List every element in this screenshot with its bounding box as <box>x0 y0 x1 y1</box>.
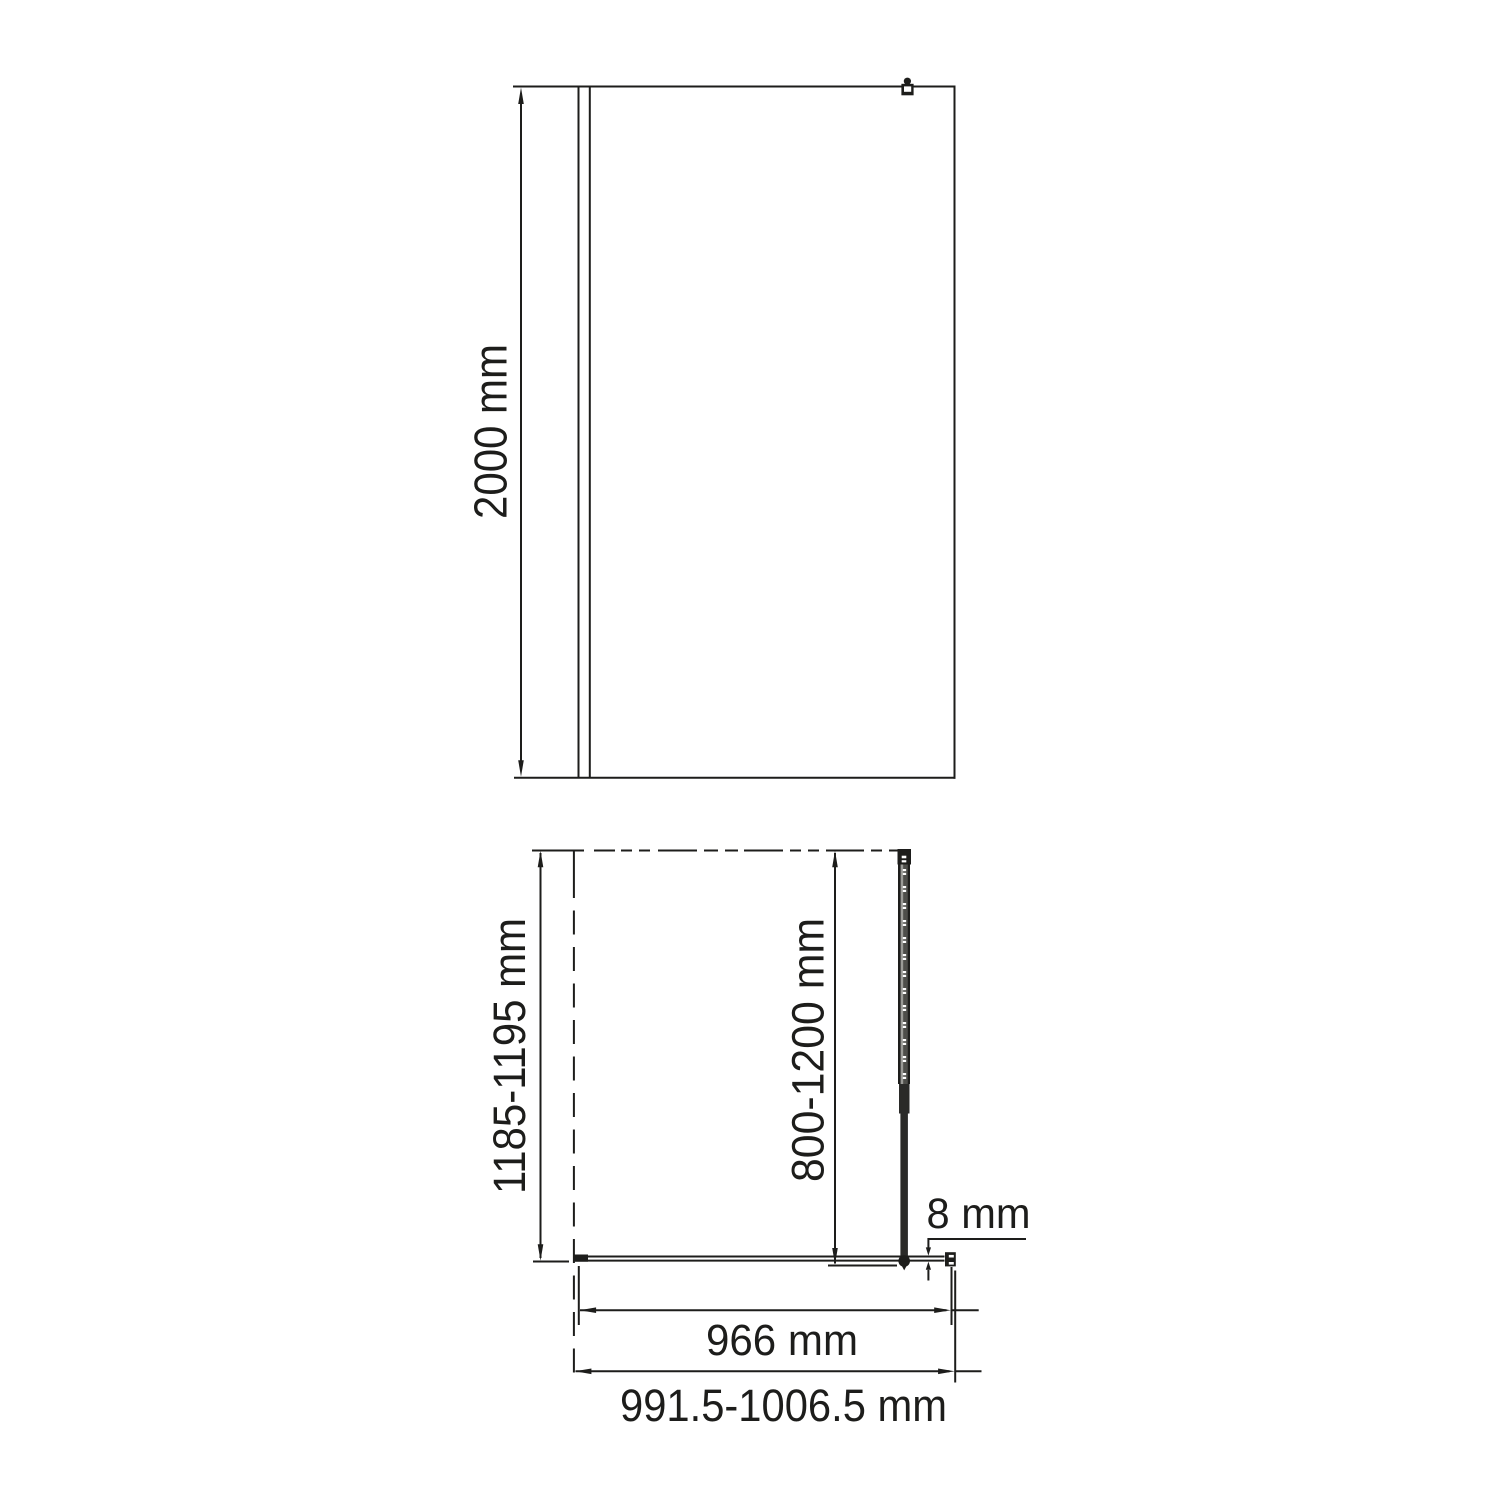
svg-text:2000 mm: 2000 mm <box>465 344 517 519</box>
svg-text:991.5-1006.5 mm: 991.5-1006.5 mm <box>620 1380 947 1431</box>
svg-text:966 mm: 966 mm <box>706 1316 858 1365</box>
svg-text:1185-1195 mm: 1185-1195 mm <box>484 918 535 1194</box>
svg-text:800-1200 mm: 800-1200 mm <box>783 918 834 1182</box>
svg-text:8 mm: 8 mm <box>927 1190 1031 1238</box>
